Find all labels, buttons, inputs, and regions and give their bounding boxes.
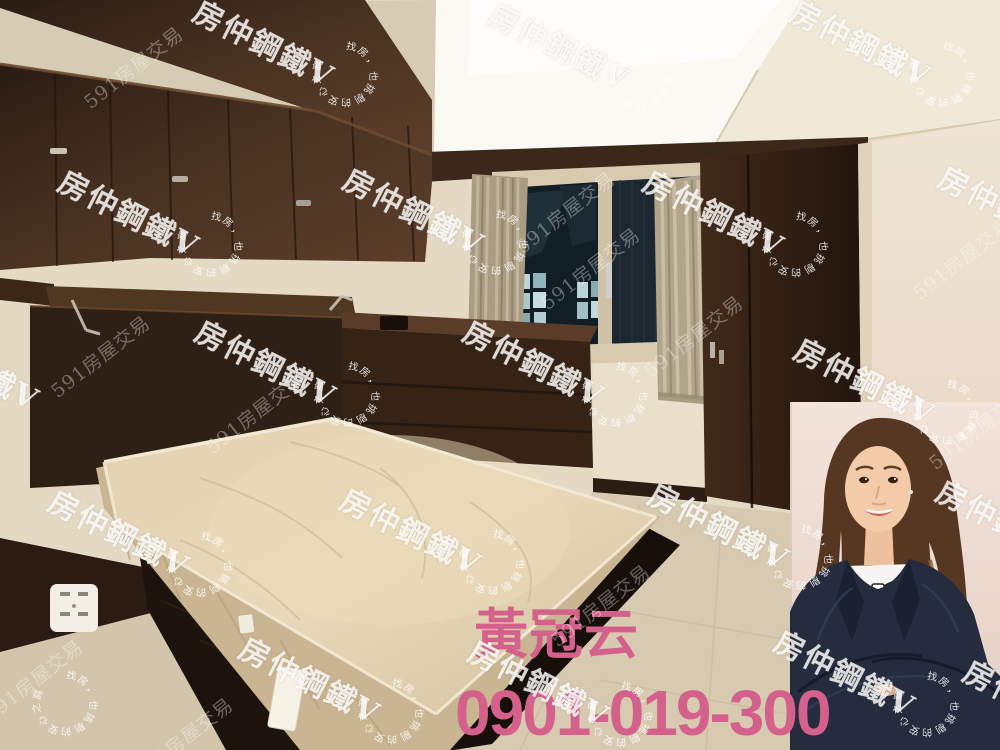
window-latch — [606, 262, 612, 298]
mattress-tag — [238, 614, 254, 634]
cabinet-handle — [296, 200, 311, 206]
agent-portrait — [790, 402, 1000, 750]
cabinet-handle — [172, 176, 188, 182]
cabinet-handle — [50, 148, 67, 154]
wardrobe-handle — [710, 342, 715, 358]
listing-photo: 黃冠云 0901-019-300 房仲鋼鐵V房仲鋼鐵V房仲鋼鐵V房仲鋼鐵V房仲鋼… — [0, 0, 1000, 750]
bedroom-photo — [0, 0, 1000, 750]
earring — [909, 490, 913, 494]
power-outlet — [50, 584, 98, 632]
agent-hand — [875, 684, 897, 696]
wardrobe-handle — [719, 350, 724, 364]
object-on-drawers — [380, 316, 408, 330]
